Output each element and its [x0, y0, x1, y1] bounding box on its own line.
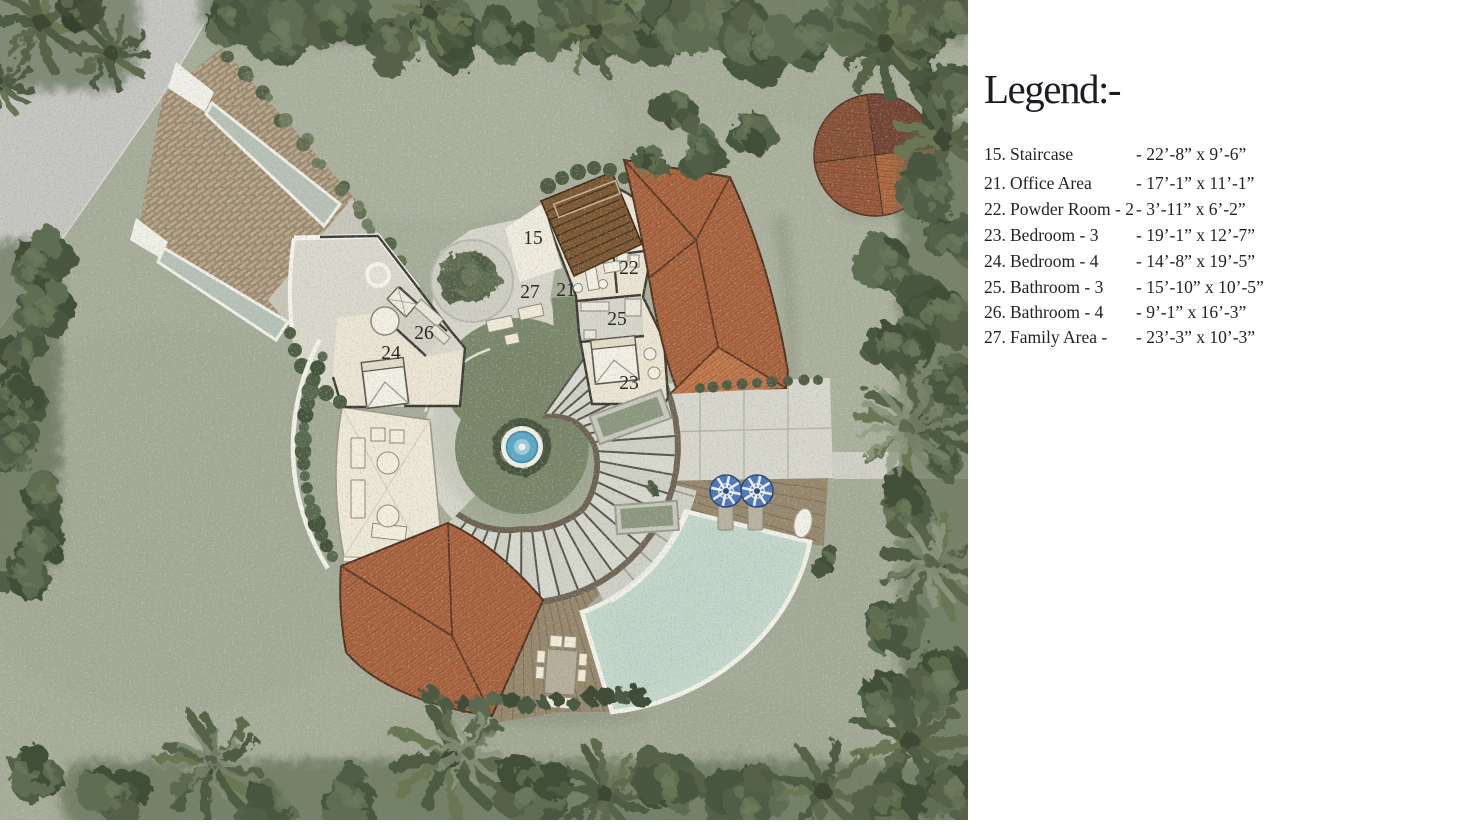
svg-text:22: 22 — [619, 258, 639, 279]
svg-text:Bathroom - 3: Bathroom - 3 — [1010, 277, 1104, 297]
svg-text:- 19’-1” x 12’-7”: - 19’-1” x 12’-7” — [1136, 225, 1255, 245]
svg-text:21.: 21. — [984, 173, 1006, 193]
svg-text:26: 26 — [414, 323, 434, 344]
svg-text:24.: 24. — [984, 251, 1006, 271]
svg-text:24: 24 — [381, 343, 401, 364]
svg-text:Bedroom - 4: Bedroom - 4 — [1010, 251, 1099, 271]
svg-text:Bathroom - 4: Bathroom - 4 — [1010, 302, 1104, 322]
svg-text:Powder Room - 2: Powder Room - 2 — [1010, 199, 1134, 219]
svg-text:- 9’-1” x 16’-3”: - 9’-1” x 16’-3” — [1136, 302, 1246, 322]
svg-text:Office Area: Office Area — [1010, 173, 1092, 193]
svg-text:- 22’-8” x 9’-6”: - 22’-8” x 9’-6” — [1136, 144, 1246, 164]
svg-text:23: 23 — [619, 373, 639, 394]
svg-text:22.: 22. — [984, 199, 1006, 219]
svg-text:Family Area -: Family Area - — [1010, 327, 1107, 347]
svg-text:- 3’-11” x 6’-2”: - 3’-11” x 6’-2” — [1136, 199, 1246, 219]
svg-text:Staircase: Staircase — [1010, 144, 1073, 164]
svg-text:23.: 23. — [984, 225, 1006, 245]
svg-text:21: 21 — [556, 280, 576, 301]
svg-text:- 15’-10” x 10’-5”: - 15’-10” x 10’-5” — [1136, 277, 1264, 297]
svg-text:25.: 25. — [984, 277, 1006, 297]
svg-text:27.: 27. — [984, 327, 1006, 347]
svg-text:Bedroom - 3: Bedroom - 3 — [1010, 225, 1099, 245]
svg-text:15: 15 — [523, 228, 543, 249]
svg-text:Legend:-: Legend:- — [984, 66, 1121, 112]
svg-text:26.: 26. — [984, 302, 1006, 322]
svg-text:25: 25 — [607, 309, 627, 330]
svg-text:15.: 15. — [984, 144, 1006, 164]
svg-text:- 17’-1” x 11’-1”: - 17’-1” x 11’-1” — [1136, 173, 1254, 193]
svg-text:- 14’-8” x 19’-5”: - 14’-8” x 19’-5” — [1136, 251, 1255, 271]
svg-text:27: 27 — [520, 282, 540, 303]
svg-text:- 23’-3” x 10’-3”: - 23’-3” x 10’-3” — [1136, 327, 1255, 347]
